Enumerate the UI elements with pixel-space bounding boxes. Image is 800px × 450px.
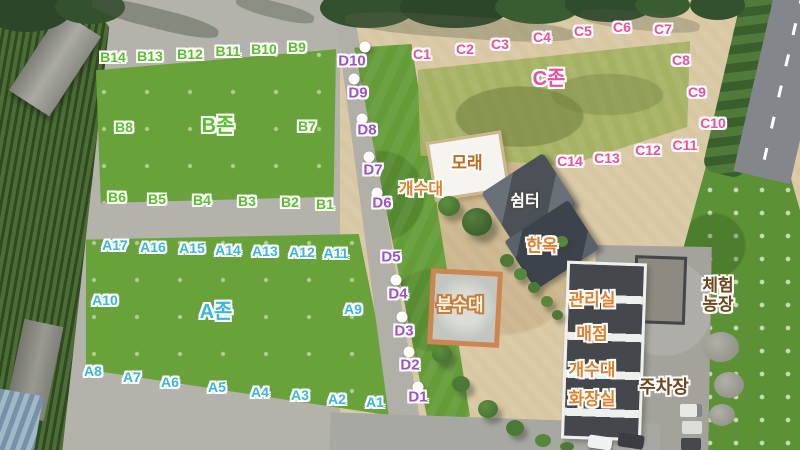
site-label-c1: C1 (413, 47, 431, 63)
tree (452, 376, 470, 392)
car (680, 404, 702, 417)
zone-label-b: B존 (202, 115, 235, 137)
site-label-d3: D3 (394, 324, 413, 341)
facility-label-restroom: 화장실 (569, 389, 616, 408)
tree (552, 310, 563, 320)
tree (500, 254, 514, 267)
tree (506, 420, 524, 436)
tree-shadow (90, 0, 221, 43)
car (587, 434, 613, 450)
site-label-a3: A3 (291, 388, 309, 404)
site-label-d8: D8 (357, 123, 376, 140)
site-label-a13: A13 (252, 244, 278, 260)
site-label-d4: D4 (388, 287, 407, 304)
site-label-a7: A7 (123, 370, 141, 386)
site-label-c11: C11 (673, 138, 698, 154)
tree (535, 434, 551, 447)
tree (432, 345, 452, 363)
site-label-c2: C2 (456, 42, 474, 58)
site-label-c8: C8 (672, 53, 690, 69)
gray-bush (703, 332, 739, 362)
site-marker (397, 312, 408, 323)
tree (528, 282, 540, 293)
site-label-b14: B14 (100, 50, 126, 66)
site-label-d10: D10 (338, 54, 366, 71)
site-label-b7: B7 (298, 119, 316, 135)
site-label-c5: C5 (574, 24, 592, 40)
site-label-d9: D9 (348, 86, 367, 103)
tree (560, 442, 574, 450)
site-label-b11: B11 (216, 44, 241, 60)
site-label-a14: A14 (215, 243, 241, 259)
site-label-a17: A17 (102, 238, 128, 254)
facility-label-sink-south: 개수대 (569, 360, 616, 379)
site-label-b4: B4 (193, 193, 211, 209)
site-marker (391, 275, 402, 286)
site-label-b12: B12 (177, 47, 203, 63)
site-label-a11: A11 (324, 246, 349, 262)
site-label-a5: A5 (208, 380, 226, 396)
site-label-c9: C9 (688, 85, 706, 101)
site-label-c14: C14 (557, 154, 583, 170)
facility-label-sand-pit: 모래 (451, 153, 482, 172)
site-label-b3: B3 (238, 194, 256, 210)
site-label-c3: C3 (491, 37, 509, 53)
facility-label-parking: 주차장 (639, 377, 689, 397)
site-label-b1: B1 (316, 197, 334, 213)
site-label-c12: C12 (635, 143, 661, 159)
site-label-c10: C10 (700, 116, 726, 132)
site-label-b13: B13 (137, 49, 163, 65)
site-label-b9: B9 (288, 40, 306, 56)
site-label-b8: B8 (115, 120, 133, 136)
site-label-b5: B5 (148, 192, 166, 208)
car (682, 421, 702, 434)
field-a (86, 234, 396, 422)
site-label-a4: A4 (251, 385, 269, 401)
tree (556, 236, 568, 247)
zone-label-a: A존 (200, 301, 233, 323)
site-label-b10: B10 (251, 42, 277, 58)
site-marker (349, 74, 360, 85)
site-label-d6: D6 (372, 196, 391, 213)
site-label-a8: A8 (84, 364, 102, 380)
tree-shadow (234, 0, 315, 27)
site-label-a2: A2 (328, 392, 346, 408)
tree (462, 208, 492, 236)
site-label-b2: B2 (281, 195, 299, 211)
facility-label-store: 매점 (576, 324, 607, 343)
car (681, 438, 701, 450)
tree (478, 400, 498, 418)
site-label-a6: A6 (161, 375, 179, 391)
site-label-a15: A15 (179, 241, 205, 257)
gray-bush (709, 404, 735, 426)
site-label-d2: D2 (400, 358, 419, 375)
campground-aerial-map: B14B13B12B11B10B9B8B7B6B5B4B3B2B1A17A16A… (0, 0, 800, 450)
facility-label-office: 관리실 (569, 290, 616, 309)
site-label-a1: A1 (366, 395, 384, 411)
facility-label-hanok: 한옥 (526, 236, 557, 255)
tree (541, 296, 553, 307)
site-label-c13: C13 (594, 151, 620, 167)
tree (514, 268, 527, 280)
site-label-c4: C4 (533, 30, 551, 46)
site-label-a10: A10 (92, 293, 118, 309)
zone-label-c: C존 (533, 68, 566, 90)
site-marker (360, 42, 371, 53)
gray-bush (714, 372, 744, 398)
site-label-d5: D5 (381, 250, 400, 267)
tree (438, 196, 460, 216)
site-label-a9: A9 (344, 302, 362, 318)
facility-label-shelter: 쉼터 (510, 193, 539, 211)
facility-building (561, 261, 647, 442)
site-label-a12: A12 (289, 245, 315, 261)
site-label-b6: B6 (108, 190, 126, 206)
facility-label-fountain: 분수대 (437, 295, 484, 314)
facility-label-sink-north: 개수대 (399, 181, 443, 199)
facility-label-experience-farm: 체험 농장 (702, 276, 733, 314)
site-label-d1: D1 (408, 390, 427, 407)
site-label-d7: D7 (363, 163, 382, 180)
site-label-c7: C7 (654, 22, 672, 38)
site-label-a16: A16 (140, 240, 166, 256)
site-label-c6: C6 (613, 20, 631, 36)
